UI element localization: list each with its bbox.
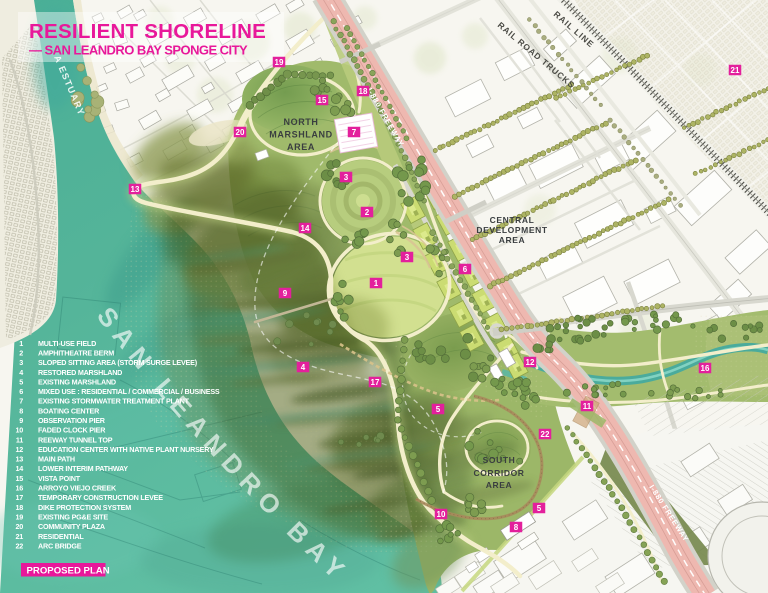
svg-text:RESILIENT SHORELINE: RESILIENT SHORELINE (29, 20, 266, 43)
svg-text:DEVELOPMENT: DEVELOPMENT (476, 225, 548, 235)
svg-text:14: 14 (301, 224, 310, 233)
svg-text:AREA: AREA (287, 142, 315, 152)
svg-text:9: 9 (283, 289, 288, 298)
svg-text:RESTORED MARSHLAND: RESTORED MARSHLAND (38, 368, 122, 377)
svg-text:MARSHLAND: MARSHLAND (269, 130, 332, 140)
svg-text:21: 21 (15, 532, 23, 541)
svg-text:15: 15 (15, 474, 23, 483)
svg-text:NORTH: NORTH (284, 117, 319, 127)
svg-text:1: 1 (374, 279, 379, 288)
svg-text:17: 17 (15, 493, 23, 502)
svg-text:TEMPORARY CONSTRUCTION LEVEE: TEMPORARY CONSTRUCTION LEVEE (38, 493, 163, 502)
svg-text:10: 10 (15, 426, 23, 435)
svg-text:OBSERVATION PIER: OBSERVATION PIER (38, 416, 106, 425)
svg-text:13: 13 (131, 185, 140, 194)
svg-text:15: 15 (318, 96, 327, 105)
svg-text:7: 7 (352, 128, 357, 137)
svg-text:MULTI-USE FIELD: MULTI-USE FIELD (38, 339, 96, 348)
svg-text:7: 7 (19, 397, 23, 406)
svg-text:AREA: AREA (486, 480, 513, 490)
svg-text:AMPHITHEATRE BERM: AMPHITHEATRE BERM (38, 348, 114, 357)
svg-text:REEWAY TUNNEL TOP: REEWAY TUNNEL TOP (38, 435, 113, 444)
svg-text:SLOPED SITTING AREA (STORM SUR: SLOPED SITTING AREA (STORM SURGE LEVEE) (38, 358, 198, 367)
svg-text:12: 12 (15, 445, 23, 454)
svg-text:22: 22 (15, 542, 23, 551)
svg-text:RESIDENTIAL: RESIDENTIAL (38, 532, 84, 541)
svg-text:16: 16 (701, 364, 710, 373)
svg-text:ARC BRIDGE: ARC BRIDGE (38, 542, 82, 551)
svg-text:8: 8 (19, 406, 23, 415)
svg-text:3: 3 (19, 358, 23, 367)
svg-text:19: 19 (15, 513, 23, 522)
svg-text:22: 22 (541, 430, 550, 439)
svg-text:CORRIDOR: CORRIDOR (473, 468, 524, 478)
svg-text:3: 3 (344, 173, 349, 182)
svg-text:16: 16 (15, 484, 23, 493)
svg-text:SOUTH: SOUTH (483, 455, 516, 465)
svg-text:20: 20 (15, 522, 23, 531)
svg-text:LOWER INTERIM PATHWAY: LOWER INTERIM PATHWAY (38, 464, 128, 473)
svg-text:2: 2 (19, 348, 23, 357)
svg-text:14: 14 (15, 464, 23, 473)
svg-text:5: 5 (436, 405, 441, 414)
svg-text:4: 4 (301, 363, 306, 372)
svg-text:AREA: AREA (499, 235, 526, 245)
svg-text:11: 11 (16, 435, 23, 444)
svg-text:BOATING CENTER: BOATING CENTER (38, 406, 100, 415)
svg-text:PROPOSED PLAN: PROPOSED PLAN (27, 566, 110, 577)
svg-text:20: 20 (236, 128, 245, 137)
svg-text:EXISTING PG&E SITE: EXISTING PG&E SITE (38, 513, 108, 522)
svg-text:MIXED USE : RESIDENTIAL / COMM: MIXED USE : RESIDENTIAL / COMMERCIAL / B… (38, 387, 220, 396)
svg-text:COMMUNITY PLAZA: COMMUNITY PLAZA (38, 522, 105, 531)
svg-text:— SAN LEANDRO BAY SPONGE CITY: — SAN LEANDRO BAY SPONGE CITY (29, 43, 248, 58)
svg-text:12: 12 (526, 358, 535, 367)
svg-text:5: 5 (19, 377, 23, 386)
svg-text:5: 5 (537, 504, 542, 513)
svg-text:18: 18 (359, 87, 368, 96)
svg-text:DIKE PROTECTION SYSTEM: DIKE PROTECTION SYSTEM (38, 503, 131, 512)
svg-text:VISTA POINT: VISTA POINT (38, 474, 81, 483)
svg-text:EXISTING STORMWATER TREATMENT: EXISTING STORMWATER TREATMENT PLANT (38, 397, 190, 406)
svg-text:3: 3 (405, 253, 410, 262)
svg-text:10: 10 (437, 510, 446, 519)
svg-text:18: 18 (15, 503, 23, 512)
svg-text:11: 11 (583, 402, 592, 411)
svg-text:2: 2 (365, 208, 370, 217)
svg-text:CENTRAL: CENTRAL (490, 215, 535, 225)
svg-text:ARROYO VIEJO CREEK: ARROYO VIEJO CREEK (38, 484, 117, 493)
svg-text:EXISTING MARSHLAND: EXISTING MARSHLAND (38, 377, 116, 386)
svg-text:EDUCATION CENTER WITH NATIVE P: EDUCATION CENTER WITH NATIVE PLANT NURSE… (38, 445, 214, 454)
svg-text:6: 6 (19, 387, 23, 396)
svg-text:13: 13 (15, 455, 23, 464)
svg-text:19: 19 (275, 58, 284, 67)
svg-text:6: 6 (463, 265, 468, 274)
svg-text:17: 17 (371, 378, 380, 387)
svg-text:1: 1 (19, 339, 23, 348)
svg-text:8: 8 (514, 523, 519, 532)
svg-text:21: 21 (731, 66, 740, 75)
svg-text:9: 9 (19, 416, 23, 425)
svg-text:MAIN PATH: MAIN PATH (38, 455, 75, 464)
svg-text:4: 4 (19, 368, 23, 377)
svg-text:FADED CLOCK PIER: FADED CLOCK PIER (38, 426, 106, 435)
